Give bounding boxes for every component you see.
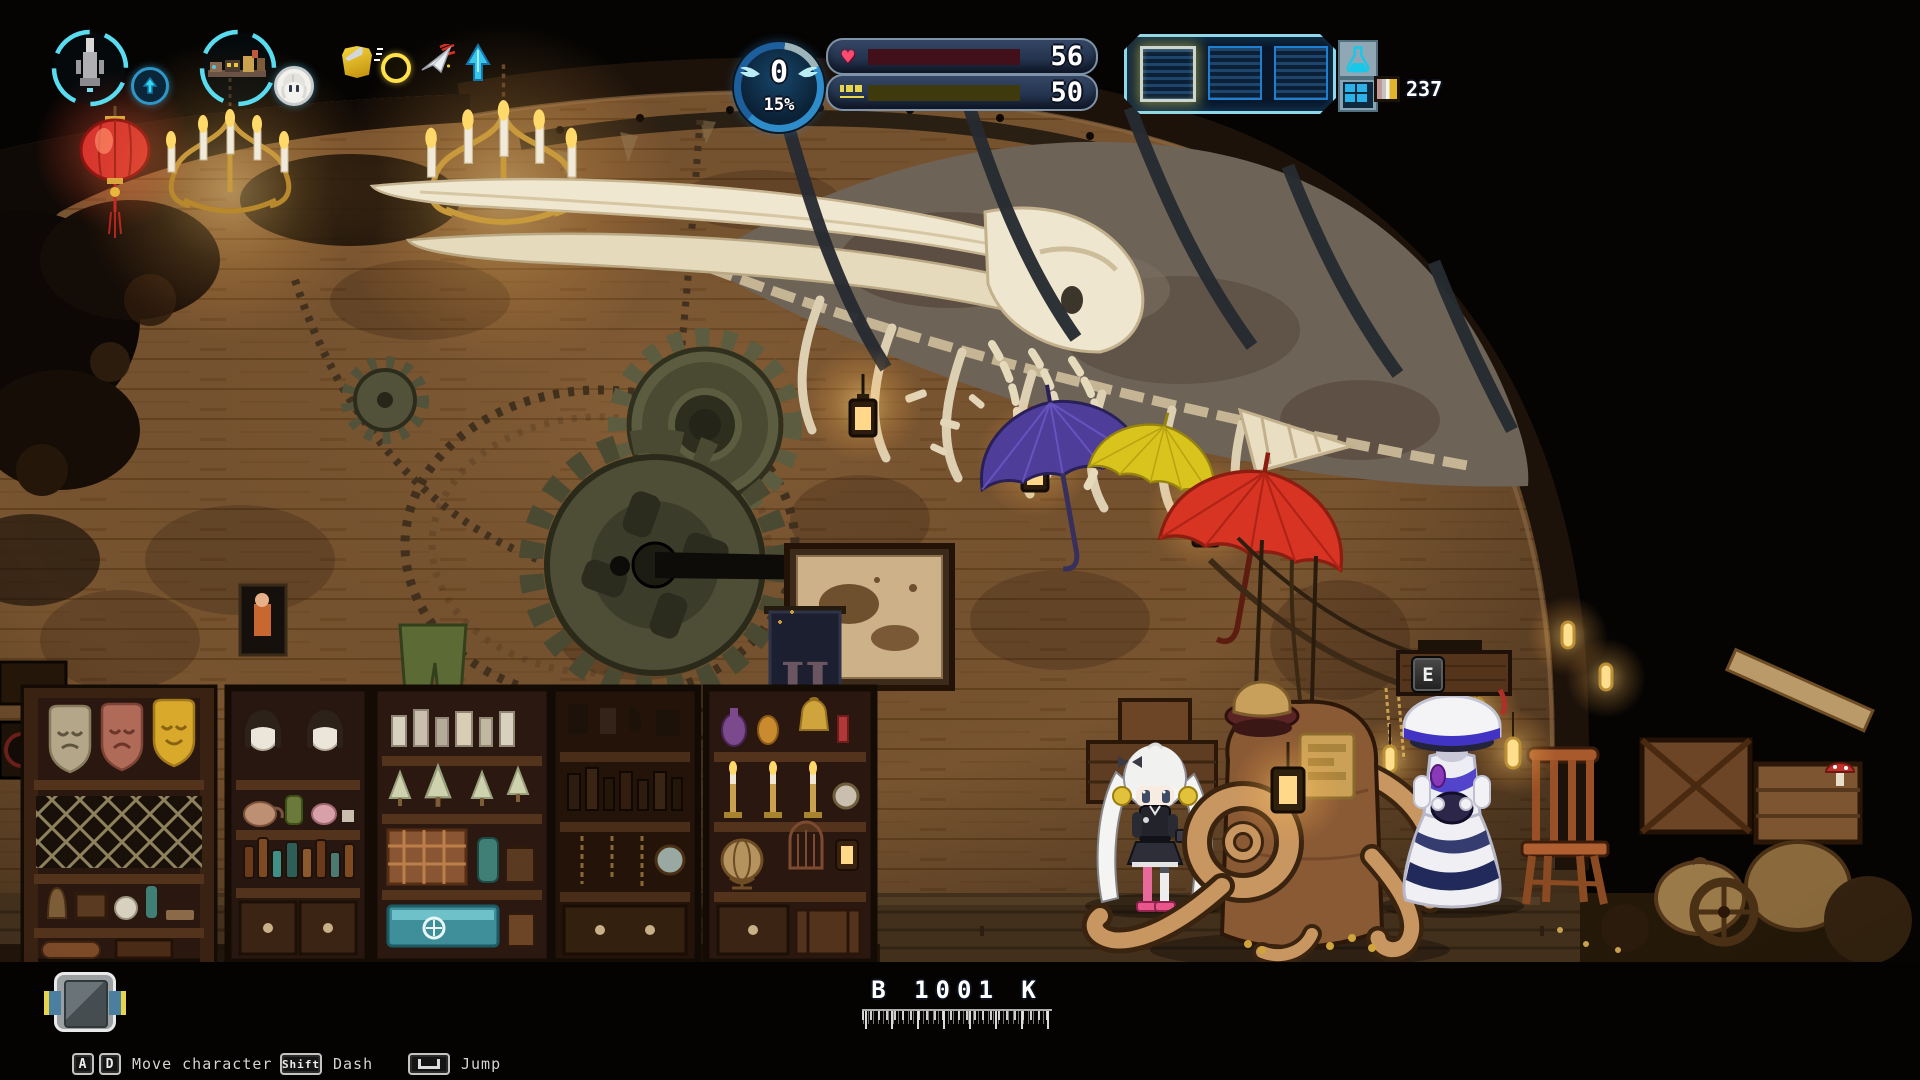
- hotbar-slot-2[interactable]: [1208, 46, 1262, 100]
- grid-icon: [1343, 82, 1373, 108]
- bag-strap: [44, 991, 61, 1015]
- depth-indicator: B 1001 K: [807, 976, 1107, 1031]
- hotbar-slot-1[interactable]: [1140, 46, 1196, 102]
- squad-ring-carrier[interactable]: [48, 26, 132, 110]
- hint-dash-label: Dash: [333, 1055, 373, 1073]
- backpack-icon: [64, 980, 108, 1028]
- flask-button[interactable]: [1338, 40, 1378, 78]
- hint-jump-label: Jump: [461, 1055, 501, 1073]
- key-shift: Shift: [280, 1053, 322, 1075]
- hotbar-panel: [1124, 34, 1336, 114]
- hotbar-slot-3[interactable]: [1274, 46, 1328, 100]
- hint-move: A D Move character: [72, 1052, 272, 1076]
- flask-icon: [1345, 45, 1371, 73]
- hud-layer: 0 15% ♥ 56 50 237 E B 1001 K: [0, 0, 1920, 1080]
- key-space: [408, 1053, 450, 1075]
- hint-dash: Shift Dash: [280, 1052, 373, 1076]
- squad-badge-girl-portrait[interactable]: [274, 66, 314, 106]
- coin-buff-icon[interactable]: [381, 53, 411, 83]
- hp-value: 56: [1050, 41, 1096, 72]
- depth-ruler: [862, 1009, 1052, 1031]
- bag-button[interactable]: [54, 972, 116, 1032]
- key-a: A: [72, 1053, 94, 1075]
- game-stage: IJ: [0, 0, 1920, 1080]
- fuel-track: [868, 85, 1020, 101]
- girl-portrait-icon: [280, 72, 308, 100]
- hint-jump: Jump: [408, 1052, 501, 1076]
- squad-ring-convoy[interactable]: [196, 26, 280, 110]
- ingot-stack-icon: [1374, 76, 1400, 102]
- hp-track: [868, 49, 1020, 65]
- up-arrow-icon: [140, 76, 160, 96]
- bag-strap: [109, 991, 126, 1015]
- interact-key-e[interactable]: E: [1411, 656, 1445, 693]
- level-value: 0: [734, 56, 824, 90]
- squad-badge-up-arrow[interactable]: [131, 67, 169, 105]
- heart-icon: ♥: [828, 45, 868, 69]
- grid-button[interactable]: [1338, 78, 1378, 112]
- fuel-icon: [828, 83, 868, 102]
- hp-bar: ♥ 56: [826, 38, 1098, 75]
- level-badge: 0 15%: [734, 42, 824, 132]
- key-d: D: [99, 1053, 121, 1075]
- fuel-bar: 50: [826, 74, 1098, 111]
- fuel-value: 50: [1050, 77, 1096, 108]
- depth-label: B 1001 K: [807, 976, 1107, 1004]
- level-progress: 15%: [734, 95, 824, 115]
- resource-count: 237: [1406, 77, 1442, 101]
- ascend-buff-icon[interactable]: [462, 42, 494, 86]
- shield-buff-icon[interactable]: [342, 46, 372, 78]
- hint-move-label: Move character: [132, 1055, 272, 1073]
- paper-plane-buff-icon[interactable]: [420, 44, 456, 80]
